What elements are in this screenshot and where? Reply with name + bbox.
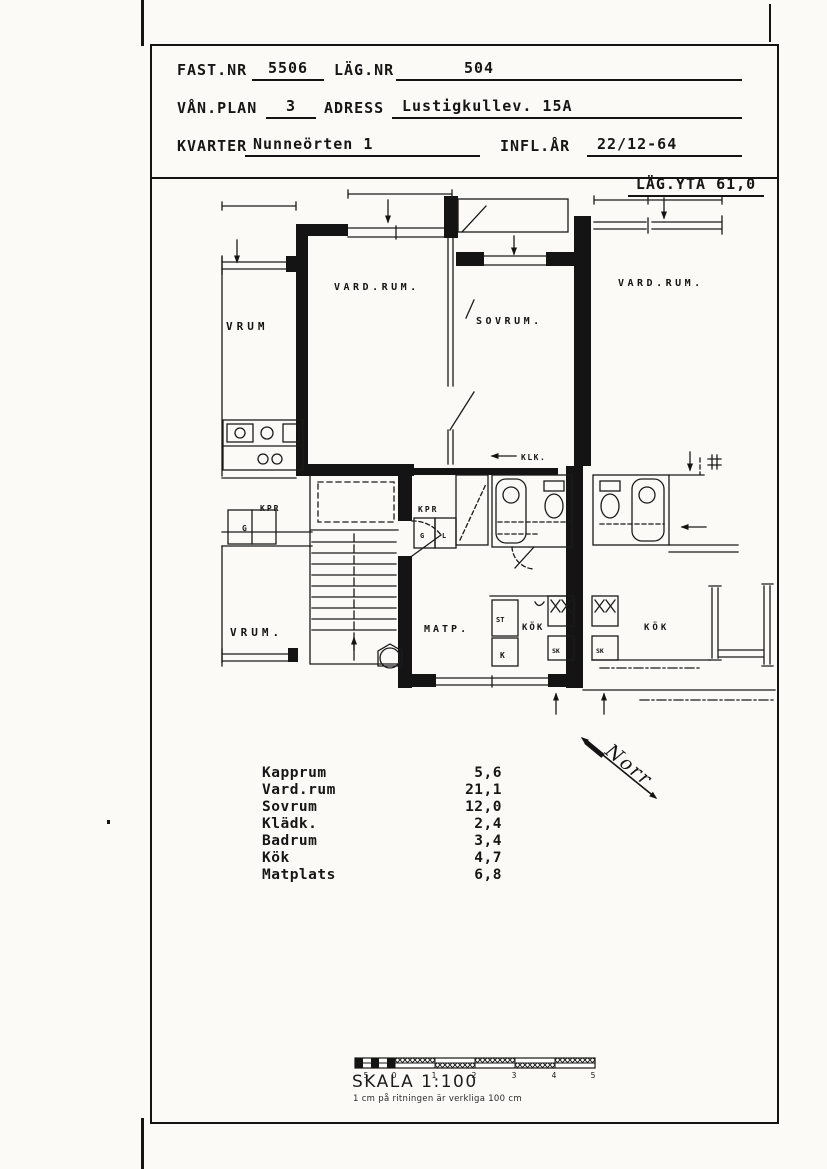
header-form: FAST.NR 5506 LÄG.NR 504 VÅN.PLAN 3 ADRES… [152, 46, 777, 179]
lag-nr-value: 504 [396, 58, 742, 81]
room-name: Kapprum [262, 765, 327, 782]
room-area: 12,0 [442, 799, 502, 816]
room-name: Vard.rum [262, 782, 336, 799]
scale-title: SKALA 1:100 [352, 1072, 478, 1092]
room-area: 3,4 [442, 833, 502, 850]
area-banner-value: 61,0 [716, 175, 756, 193]
apartment-area-banner: LÄG.YTA 61,0 [628, 175, 764, 197]
table-row: Matplats 6,8 [262, 867, 502, 884]
room-area: 21,1 [442, 782, 502, 799]
adress-label: ADRESS [324, 99, 384, 117]
room-name: Sovrum [262, 799, 317, 816]
table-row: Sovrum 12,0 [262, 799, 502, 816]
lag-nr-label: LÄG.NR [334, 61, 394, 79]
scale-subtitle: 1 cm på ritningen är verkliga 100 cm [353, 1094, 522, 1104]
area-banner-label: LÄG.YTA [636, 175, 706, 193]
kvarter-label: KVARTER [177, 137, 247, 155]
kvarter-value: Nunneörten 1 [245, 134, 480, 157]
scanned-floorplan-page: VRUM VARD.RUM. SOVRUM. VARD.RUM. KLK. KP… [0, 0, 827, 1169]
infl-ar-label: INFL.ÅR [500, 137, 570, 155]
room-name: Badrum [262, 833, 317, 850]
room-name: Klädk. [262, 816, 317, 833]
page-frame: FAST.NR 5506 LÄG.NR 504 VÅN.PLAN 3 ADRES… [150, 44, 779, 1124]
room-area: 2,4 [442, 816, 502, 833]
van-plan-value: 3 [266, 96, 316, 119]
room-area: 4,7 [442, 850, 502, 867]
table-row: Badrum 3,4 [262, 833, 502, 850]
room-area-table: Kapprum 5,6 Vard.rum 21,1 Sovrum 12,0 Kl… [262, 765, 502, 884]
table-row: Klädk. 2,4 [262, 816, 502, 833]
table-row: Kök 4,7 [262, 850, 502, 867]
table-row: Kapprum 5,6 [262, 765, 502, 782]
adress-value: Lustigkullev. 15A [392, 96, 742, 119]
infl-ar-value: 22/12-64 [587, 134, 742, 157]
van-plan-label: VÅN.PLAN [177, 99, 257, 117]
fast-nr-value: 5506 [252, 58, 324, 81]
room-area: 5,6 [442, 765, 502, 782]
room-name: Matplats [262, 867, 336, 884]
fast-nr-label: FAST.NR [177, 61, 247, 79]
table-row: Vard.rum 21,1 [262, 782, 502, 799]
room-name: Kök [262, 850, 290, 867]
room-area: 6,8 [442, 867, 502, 884]
